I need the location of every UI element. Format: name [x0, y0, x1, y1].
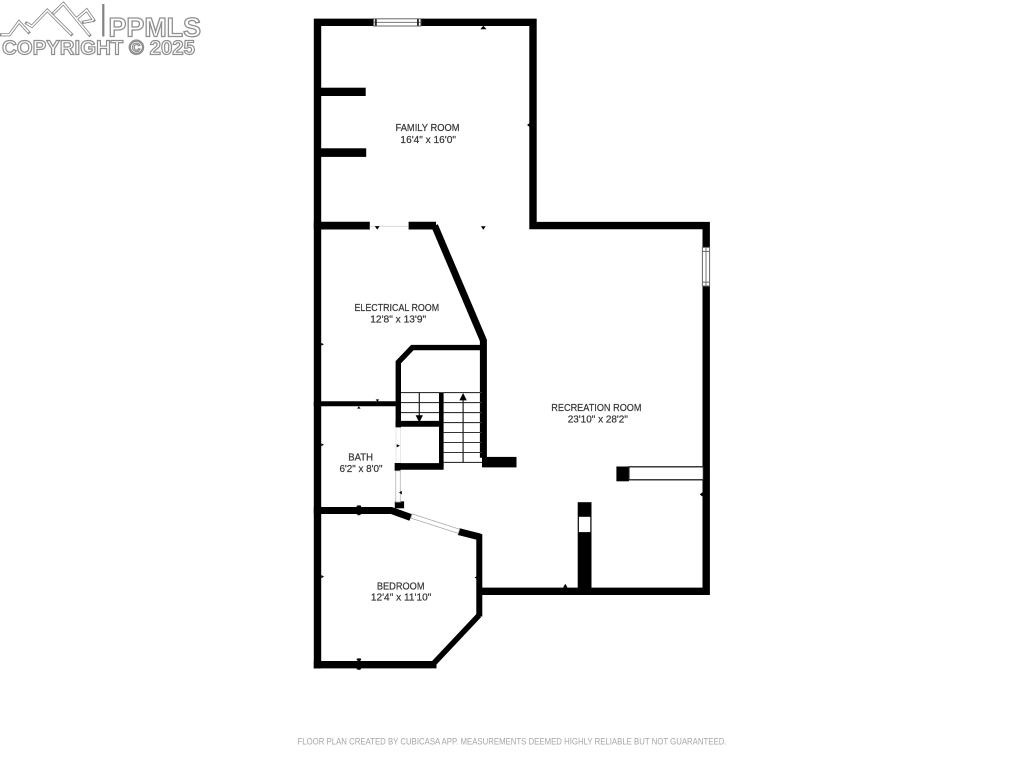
- svg-text:ELECTRICAL ROOM: ELECTRICAL ROOM: [355, 303, 440, 314]
- svg-text:COPYRIGHT © 2025: COPYRIGHT © 2025: [2, 37, 195, 59]
- svg-text:16'4" x 16'0": 16'4" x 16'0": [400, 135, 456, 146]
- svg-text:FLOOR PLAN CREATED BY CUBICASA: FLOOR PLAN CREATED BY CUBICASA APP. MEAS…: [298, 736, 727, 747]
- svg-text:FAMILY ROOM: FAMILY ROOM: [396, 123, 460, 134]
- svg-text:BATH: BATH: [348, 452, 373, 463]
- svg-text:23'10" x 28'2": 23'10" x 28'2": [568, 414, 629, 425]
- svg-text:6'2" x 8'0": 6'2" x 8'0": [339, 464, 383, 475]
- svg-text:BEDROOM: BEDROOM: [377, 581, 425, 592]
- svg-text:12'4" x 11'10": 12'4" x 11'10": [371, 593, 432, 604]
- svg-text:12'8" x 13'9": 12'8" x 13'9": [370, 315, 426, 326]
- svg-text:RECREATION ROOM: RECREATION ROOM: [551, 403, 641, 414]
